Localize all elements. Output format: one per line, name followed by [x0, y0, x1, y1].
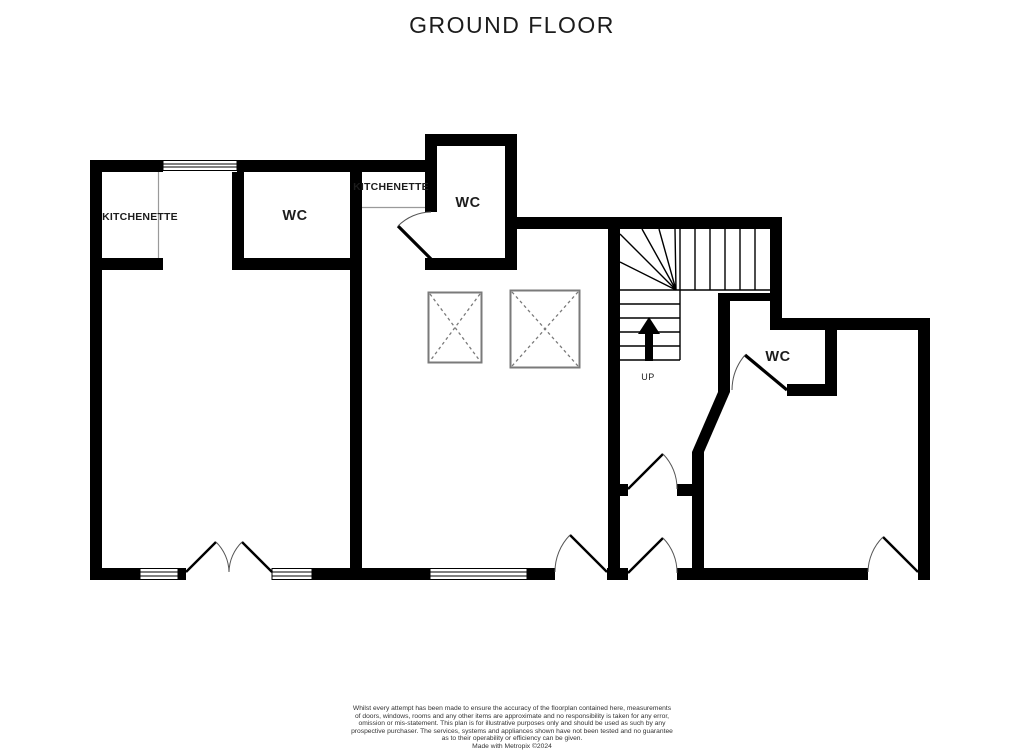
- stairs-up-label: UP: [641, 372, 655, 382]
- wall-segment: [425, 134, 517, 146]
- rooflight-cross: [512, 292, 578, 366]
- up-arrow-icon: [638, 317, 660, 361]
- floorplan-drawing: [0, 0, 1024, 755]
- wall-segment: [770, 318, 930, 330]
- room-label-wc-middle: WC: [455, 195, 480, 211]
- wall-segment: [918, 318, 930, 580]
- wall-segment: [90, 258, 163, 270]
- wall-segment: [425, 134, 437, 212]
- wall-segment-diagonal: [692, 392, 730, 452]
- floorplan-page: GROUND FLOOR: [0, 0, 1024, 755]
- wall-segment: [608, 229, 620, 568]
- disclaimer-line: as to their operability or efficiency ca…: [0, 735, 1024, 743]
- door-arc: [229, 542, 242, 572]
- door-leaf: [628, 454, 663, 489]
- wall-segment: [178, 568, 186, 580]
- wall-segment: [312, 568, 430, 580]
- room-label-wc-right: WC: [765, 349, 790, 365]
- wall-segment: [232, 172, 244, 258]
- disclaimer-line: omission or mis-statement. This plan is …: [0, 720, 1024, 728]
- wall-segment: [505, 134, 517, 270]
- wall-segment: [918, 568, 930, 580]
- wall-segment: [232, 258, 362, 270]
- room-label-wc-left: WC: [282, 208, 307, 224]
- wall-segment: [607, 568, 628, 580]
- door-leaf: [570, 535, 607, 572]
- room-label-kitchenette-middle: KITCHENETTE: [353, 181, 429, 193]
- wall-segment: [718, 301, 730, 392]
- disclaimer-line: Whilst every attempt has been made to en…: [0, 705, 1024, 713]
- wall-segment: [787, 384, 837, 396]
- window: [163, 161, 237, 171]
- rooflights: [429, 291, 580, 368]
- door-arc: [868, 537, 883, 572]
- door-arc: [663, 454, 677, 489]
- stair-fan-lines: [620, 229, 676, 290]
- wall-segment: [692, 452, 704, 568]
- door-arc: [663, 538, 677, 573]
- door-leaf: [398, 226, 431, 259]
- door-arc: [398, 212, 431, 226]
- room-label-kitchenette-left: KITCHENETTE: [102, 211, 178, 223]
- wall-segment: [350, 160, 362, 568]
- door-leaf: [242, 542, 272, 572]
- door-leaf: [628, 538, 663, 573]
- door-arc: [216, 542, 229, 572]
- up-arrow-shaft: [645, 333, 653, 361]
- door-arc: [555, 535, 570, 572]
- disclaimer: Whilst every attempt has been made to en…: [0, 705, 1024, 750]
- wall-segment: [425, 258, 517, 270]
- door-leaf: [883, 537, 918, 572]
- window: [430, 569, 527, 580]
- wall-segment: [527, 568, 555, 580]
- rooflight-cross: [430, 294, 480, 361]
- window: [272, 569, 312, 580]
- wall-segment: [770, 229, 782, 330]
- wall-segment: [237, 160, 428, 172]
- up-arrow-head: [638, 317, 660, 334]
- disclaimer-credit: Made with Metropix ©2024: [0, 743, 1024, 751]
- stair-tread: [680, 229, 755, 290]
- door-leaf: [186, 542, 216, 572]
- windows: [140, 161, 527, 580]
- wall-segment: [90, 568, 140, 580]
- wall-segment: [505, 217, 782, 229]
- wall-segment: [677, 568, 868, 580]
- wall-segment: [677, 484, 704, 496]
- disclaimer-line: of doors, windows, rooms and any other i…: [0, 713, 1024, 721]
- wall-segment: [718, 293, 782, 301]
- disclaimer-line: prospective purchaser. The services, sys…: [0, 728, 1024, 736]
- wall-segment: [608, 484, 628, 496]
- door-arc: [732, 355, 745, 390]
- wall-segment: [90, 160, 102, 580]
- window: [140, 569, 178, 580]
